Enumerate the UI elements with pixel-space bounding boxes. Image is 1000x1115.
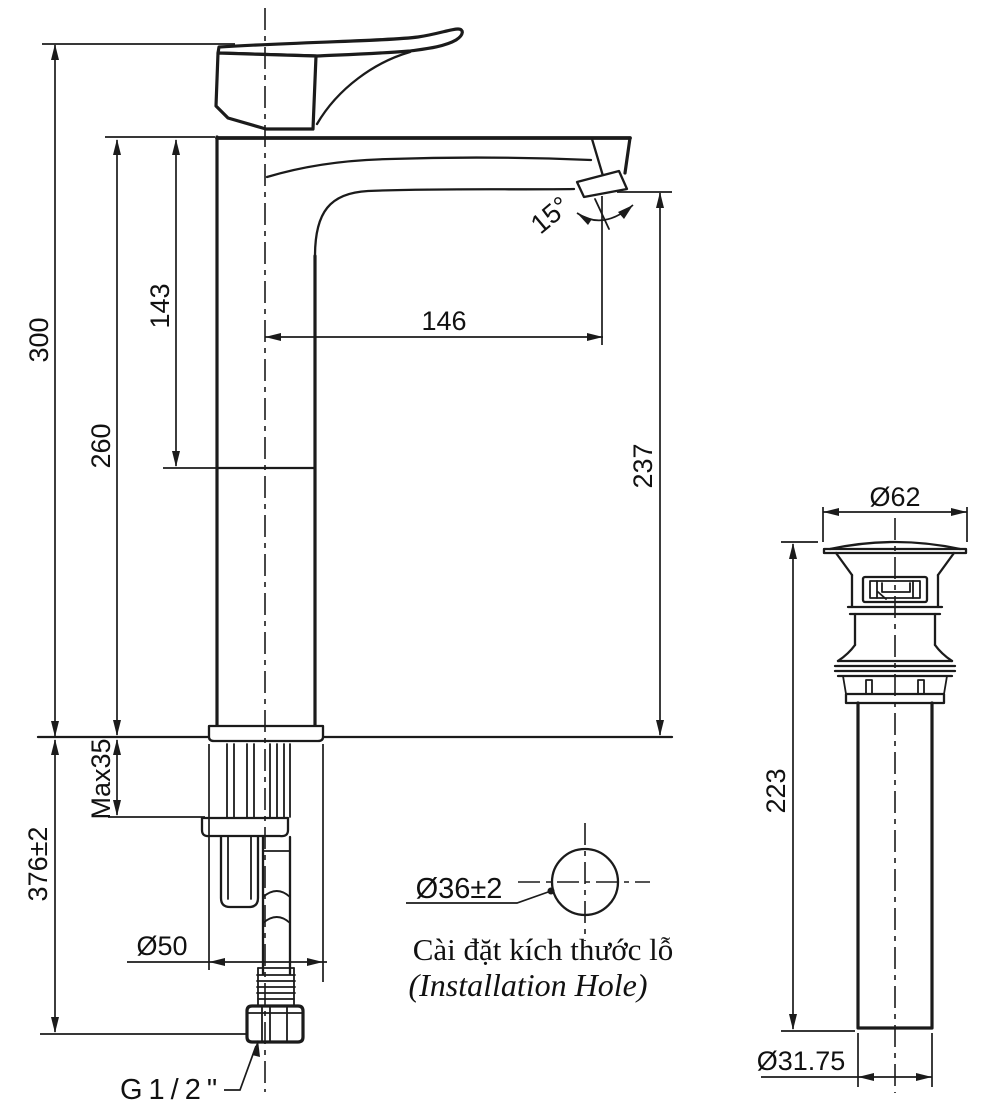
dim-label-d36: Ø36±2	[416, 873, 503, 905]
dim-label-146: 146	[421, 306, 466, 336]
base-flange	[209, 726, 323, 741]
dim-base-diameter: Ø50	[127, 931, 327, 966]
dim-top-to-joint: 143	[145, 139, 180, 467]
dim-label-d3175: Ø31.75	[757, 1046, 846, 1076]
caption-english: (Installation Hole)	[408, 967, 647, 1003]
dim-body-top-height: 260	[86, 139, 121, 736]
dim-label-g12: G1/2"	[120, 1074, 223, 1106]
dim-outlet-angle: 15°	[525, 190, 633, 239]
dim-tail-diameter: Ø31.75	[757, 1046, 932, 1081]
spout-aerator	[577, 171, 627, 197]
lock-washer	[202, 818, 288, 836]
caption-vietnamese: Cài đặt kích thước lỗ	[413, 932, 673, 967]
drain-pin-right	[918, 680, 924, 694]
dim-tail-length: 223	[761, 543, 797, 1030]
spout-tip-right-edge	[625, 138, 630, 173]
dim-label-376: 376±2	[23, 827, 53, 902]
spout-upper-contour	[267, 158, 591, 177]
technical-drawing-page: 300 143 260 376±2 Max35 237 223	[0, 0, 1000, 1115]
handle-lever	[218, 29, 462, 56]
supply-tube-short-inner	[228, 837, 251, 899]
dim-hole-diameter: Ø36±2	[416, 873, 503, 905]
dim-max-deck-thickness: Max35	[86, 738, 121, 819]
faucet-dimension-drawing: 300 143 260 376±2 Max35 237 223	[0, 0, 1000, 1115]
hose-hex-nut	[247, 1006, 303, 1042]
supply-tubes	[227, 744, 290, 817]
supply-tube-short	[221, 837, 258, 907]
supply-hose	[263, 837, 290, 974]
dim-flange-diameter: Ø62	[823, 482, 967, 516]
dim-thread: G1/2"	[120, 1040, 260, 1106]
spout-tip-face-line	[592, 139, 603, 176]
captions: Cài đặt kích thước lỗ (Installation Hole…	[408, 932, 673, 1003]
dim-label-223: 223	[761, 768, 791, 813]
centerlines	[265, 8, 895, 1093]
handle-block	[216, 53, 316, 129]
dim-label-d50: Ø50	[136, 931, 187, 961]
dim-outlet-height: 237	[628, 192, 664, 736]
dim-label-15deg: 15°	[525, 190, 576, 239]
drain-pin-left	[866, 680, 872, 694]
dim-label-260: 260	[86, 423, 116, 468]
dim-label-d62: Ø62	[869, 482, 920, 512]
hole-leader-dot	[548, 888, 555, 895]
dim-label-143: 143	[145, 283, 175, 328]
dim-label-max35: Max35	[86, 738, 116, 819]
dim-below-counter-length: 376±2	[23, 739, 59, 1033]
handle-block-contour	[317, 52, 410, 124]
dim-total-height: 300	[24, 44, 59, 737]
dim-label-237: 237	[628, 443, 658, 488]
dim-label-300: 300	[24, 317, 54, 362]
